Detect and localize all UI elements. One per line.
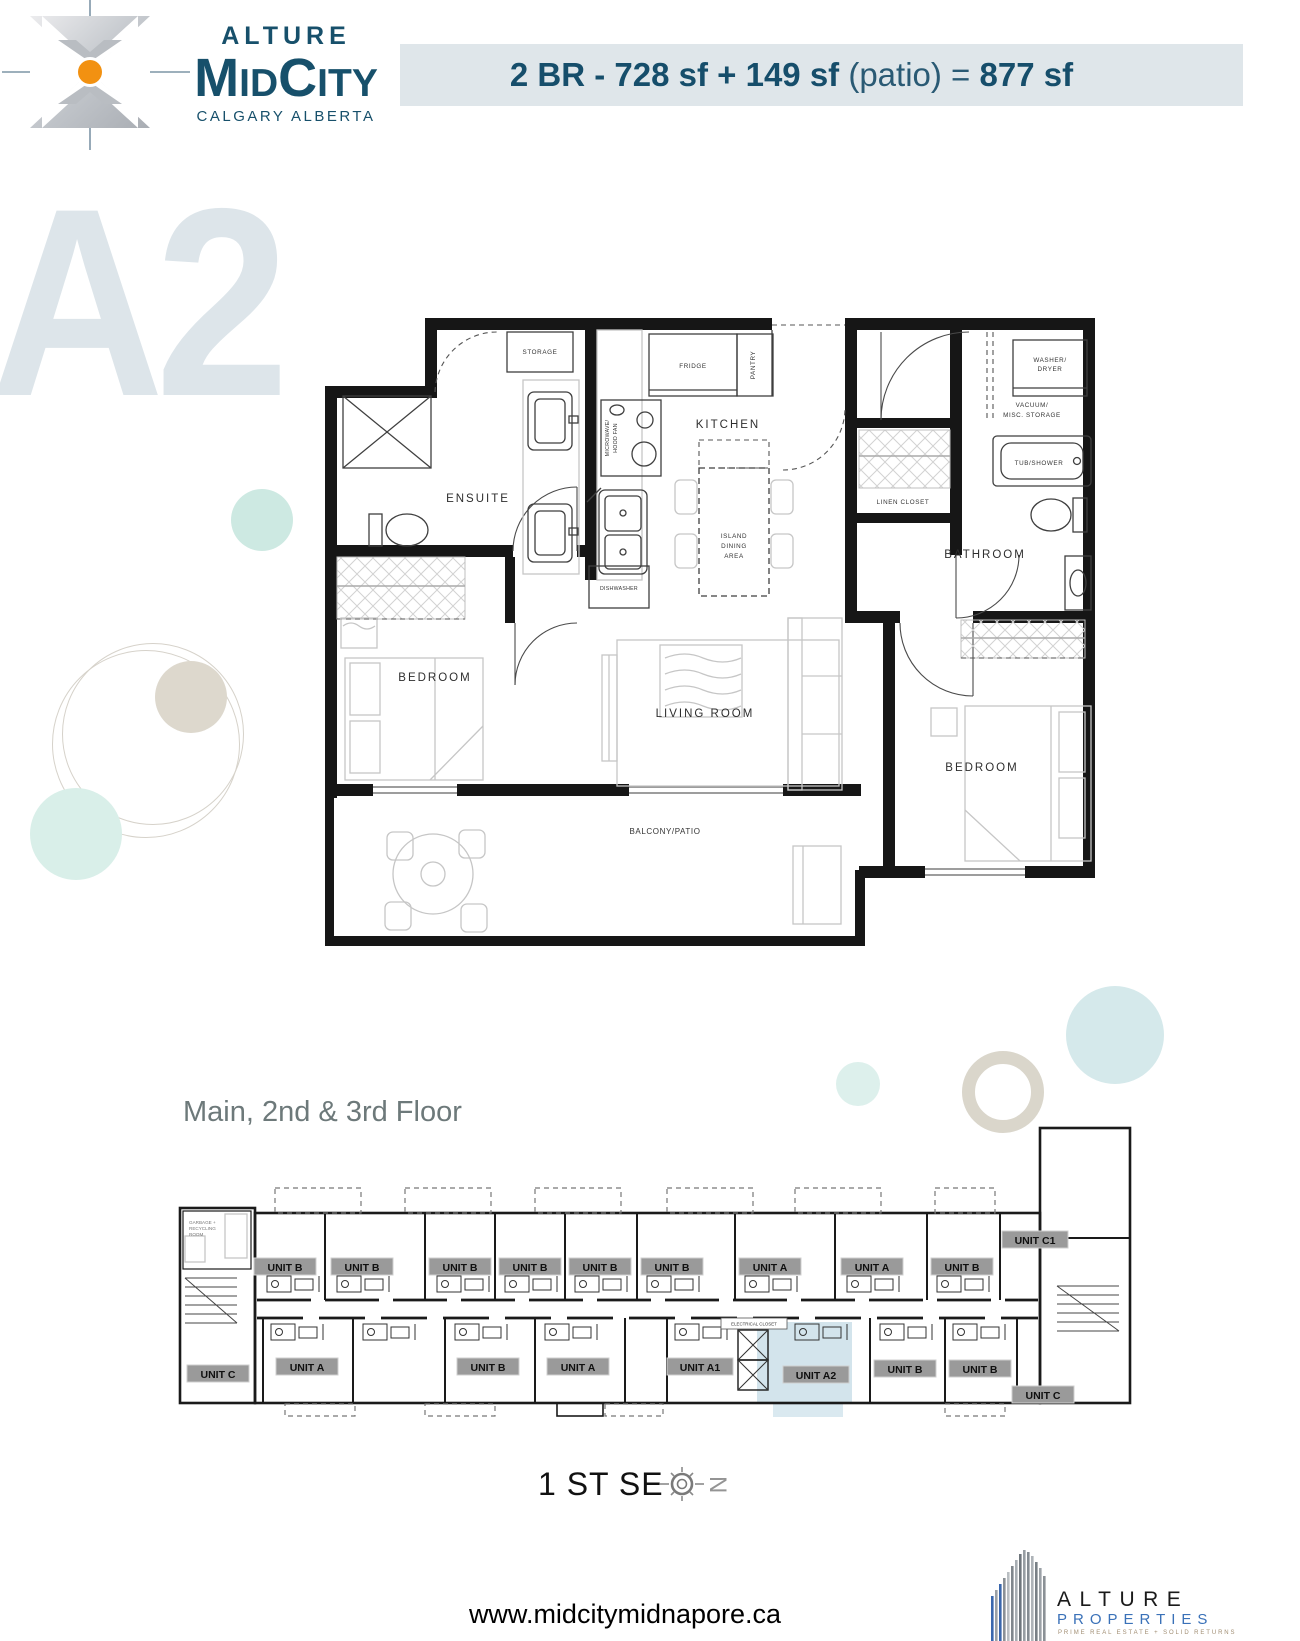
unit-badge: UNIT B xyxy=(945,1262,980,1274)
unit-badge: UNIT B xyxy=(471,1362,506,1374)
unit-badges-bottom: UNIT C UNIT A UNIT B UNIT A UNIT A1 UNIT… xyxy=(187,1358,1074,1403)
toilet-icon xyxy=(1031,498,1087,532)
lobby-entry xyxy=(557,1403,603,1416)
unit-badge: UNIT B xyxy=(345,1262,380,1274)
label-washer-2: DRYER xyxy=(1038,366,1063,373)
label-balcony: BALCONY/PATIO xyxy=(629,827,700,836)
kitchen-counter xyxy=(597,330,642,580)
unit-badge: UNIT A xyxy=(290,1362,325,1374)
label-bathroom: BATHROOM xyxy=(944,549,1026,561)
label-linen: LINEN CLOSET xyxy=(877,499,930,506)
label-garbage-3: ROOM xyxy=(189,1232,203,1237)
unit-badge: UNIT A xyxy=(753,1262,788,1274)
unit-badge: UNIT B xyxy=(963,1364,998,1376)
unit-badge: UNIT A xyxy=(561,1362,596,1374)
label-vacuum-2: MISC. STORAGE xyxy=(1003,412,1061,419)
banner-area-text: 2 BR - 728 sf + 149 sf xyxy=(510,56,839,94)
label-island-1: ISLAND xyxy=(721,533,747,540)
deco-circle-beige xyxy=(155,661,227,733)
brand-letter: ID xyxy=(239,62,278,105)
deco-circle-teal-small xyxy=(836,1062,880,1106)
island-icon xyxy=(675,440,793,596)
ensuite-vanity xyxy=(523,380,579,574)
properties-logo-name: ALTURE xyxy=(1057,1588,1189,1611)
unit-code-watermark: A2 xyxy=(0,168,280,436)
alture-midcity-logo-icon xyxy=(0,0,200,155)
closet-hall xyxy=(859,430,950,488)
label-pantry: PANTRY xyxy=(750,351,757,380)
label-washer-1: WASHER/ xyxy=(1033,357,1066,364)
unit-badge: UNIT B xyxy=(513,1262,548,1274)
toilet-icon xyxy=(369,514,428,546)
label-microwave-2: HOOD FAN xyxy=(613,423,619,453)
label-ensuite: ENSUITE xyxy=(446,493,510,505)
brand-name-midcity: MIDCITY xyxy=(186,53,386,104)
label-fridge: FRIDGE xyxy=(679,363,706,370)
north-letter: N xyxy=(704,1476,731,1493)
unit-badge: UNIT B xyxy=(655,1262,690,1274)
building-floorplate: GARBAGE + RECYCLING ROOM ELECTRICAL CLOS… xyxy=(175,1118,1135,1418)
label-island-3: AREA xyxy=(724,553,744,560)
properties-logo-sub: PROPERTIES xyxy=(1057,1611,1213,1628)
brand-city: CALGARY ALBERTA xyxy=(186,108,386,125)
electrical-closet: ELECTRICAL CLOSET xyxy=(721,1318,787,1329)
label-vacuum-1: VACUUM/ xyxy=(1016,402,1049,409)
unit-badge: UNIT B xyxy=(443,1262,478,1274)
balcony-dashed-outlines xyxy=(275,1188,1005,1416)
unit-badges-top: UNIT B UNIT B UNIT B UNIT B UNIT B UNIT … xyxy=(254,1231,1068,1275)
living-room-furniture xyxy=(602,618,842,790)
brand-letter: M xyxy=(194,48,239,108)
label-kitchen: KITCHEN xyxy=(696,419,760,431)
page: ALTURE MIDCITY CALGARY ALBERTA 2 BR - 72… xyxy=(0,0,1300,1641)
street-label: 1 ST SE xyxy=(538,1466,664,1503)
label-bedroom-left: BEDROOM xyxy=(398,672,471,684)
label-garbage-2: RECYCLING xyxy=(189,1226,216,1231)
unit-badge: UNIT A1 xyxy=(680,1362,721,1374)
patio-table-icon xyxy=(385,830,487,932)
label-living-room: LIVING ROOM xyxy=(656,708,755,720)
label-bedroom-right: BEDROOM xyxy=(945,762,1018,774)
shower-icon xyxy=(343,396,431,468)
brand-letter: ITY xyxy=(317,62,378,105)
properties-building-icon xyxy=(991,1550,1046,1641)
deco-circle-teal-bottom xyxy=(30,788,122,880)
unit-a2-highlight xyxy=(757,1322,852,1403)
label-electrical-closet: ELECTRICAL CLOSET xyxy=(731,1322,777,1327)
unit-badge: UNIT C xyxy=(201,1369,236,1381)
alture-properties-logo: ALTURE PROPERTIES PRIME REAL ESTATE + SO… xyxy=(985,1538,1285,1641)
bed-left-icon xyxy=(341,618,483,780)
brand-letter: C xyxy=(278,48,317,108)
banner-patio-text: (patio) = xyxy=(839,56,979,94)
properties-logo-tagline: PRIME REAL ESTATE + SOLID RETURNS xyxy=(1058,1630,1236,1636)
stairs-left-icon xyxy=(185,1278,237,1323)
website-url: www.midcitymidnapore.ca xyxy=(455,1599,795,1630)
stairs-right-icon xyxy=(1057,1286,1119,1331)
bed-right-icon xyxy=(931,706,1091,861)
label-island-2: DINING xyxy=(721,543,747,550)
label-microwave-1: MICROWAVE/ xyxy=(605,420,611,457)
unit-badge: UNIT B xyxy=(888,1364,923,1376)
label-tub: TUB/SHOWER xyxy=(1015,460,1064,467)
deco-circle-teal xyxy=(231,489,293,551)
label-garbage-1: GARBAGE + xyxy=(189,1220,216,1225)
garbage-room: GARBAGE + RECYCLING ROOM xyxy=(183,1211,251,1269)
balcony-planter xyxy=(793,846,841,924)
compass-icon: N xyxy=(660,1462,750,1510)
brand-name-top: ALTURE xyxy=(186,22,386,51)
unit-badge: UNIT B xyxy=(583,1262,618,1274)
closet-right xyxy=(961,620,1085,658)
banner-total-text: 877 sf xyxy=(980,56,1074,94)
unit-badge: UNIT C1 xyxy=(1015,1235,1056,1247)
unit-a2-balcony-highlight xyxy=(773,1403,843,1417)
label-dishwasher: DISHWASHER xyxy=(600,586,638,592)
label-storage: STORAGE xyxy=(523,349,558,356)
unit-size-banner: 2 BR - 728 sf + 149 sf (patio) = 877 sf xyxy=(400,44,1243,106)
unit-badge: UNIT A xyxy=(855,1262,890,1274)
brand-block: ALTURE MIDCITY CALGARY ALBERTA xyxy=(186,22,386,125)
unit-badge-a2: UNIT A2 xyxy=(796,1370,837,1382)
deco-circle-blue-right xyxy=(1066,986,1164,1084)
unit-badge: UNIT B xyxy=(268,1262,303,1274)
unit-floorplan: STORAGE FRIDGE PANTRY MICROWAVE/ HOOD FA… xyxy=(325,318,1100,948)
unit-badge: UNIT C xyxy=(1026,1390,1061,1402)
closet-left xyxy=(337,557,465,619)
